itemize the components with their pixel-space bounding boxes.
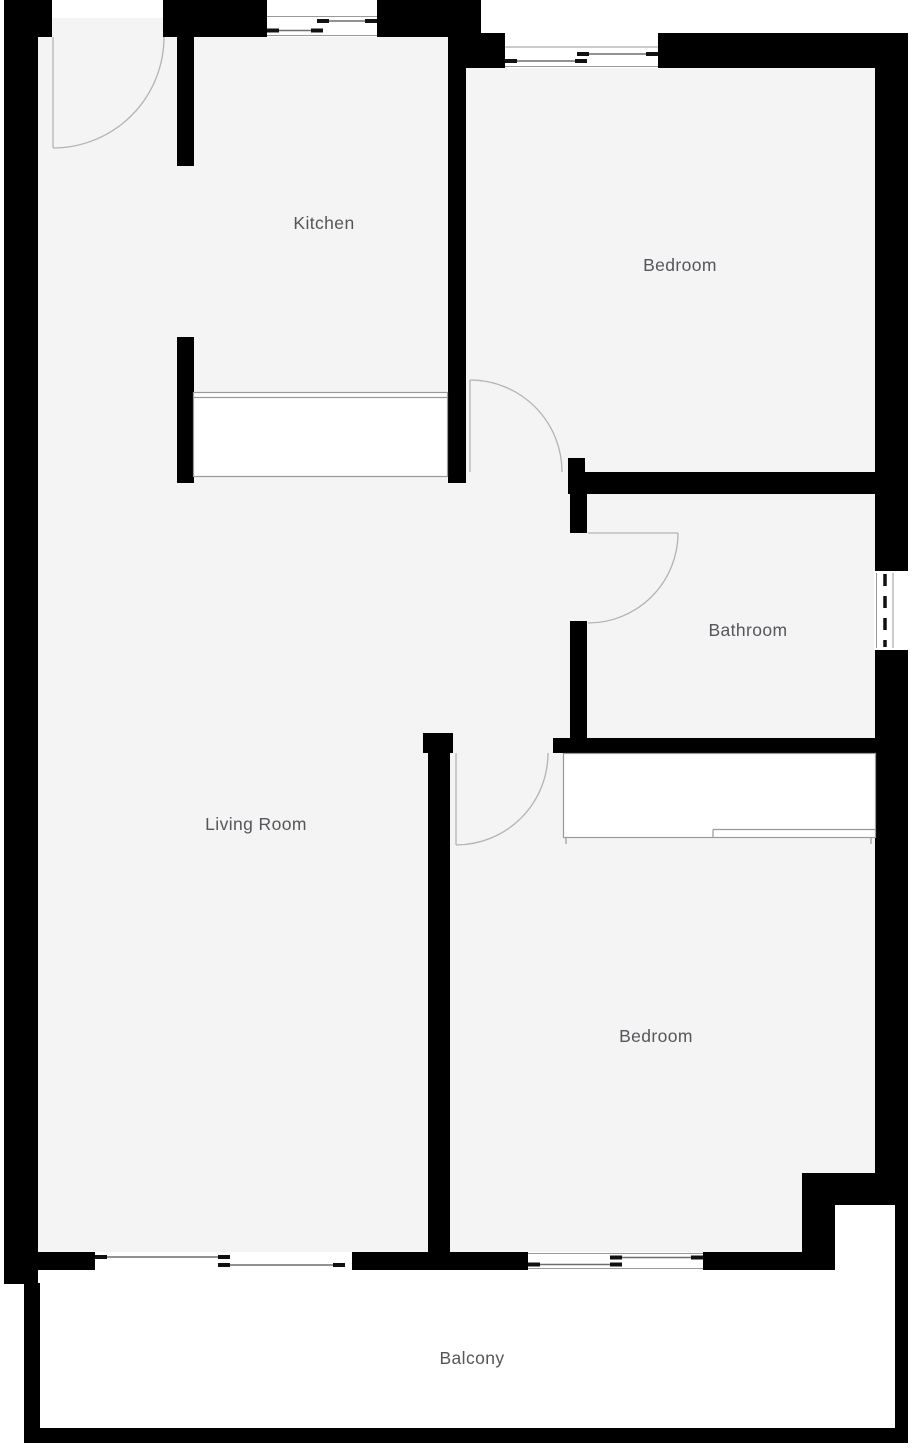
room-label-bedroom-bottom: Bedroom	[619, 1026, 693, 1046]
wall-kitchen-stub-lower	[177, 337, 194, 483]
wall-living-bedroom2	[428, 733, 450, 1252]
wall-top-d	[658, 33, 908, 68]
balcony-wall-bottom	[24, 1428, 908, 1443]
room-label-balcony: Balcony	[439, 1348, 504, 1368]
bedroom-closet-body	[564, 754, 876, 838]
wall-recess-horizontal	[802, 1173, 877, 1205]
floorplan-canvas: Kitchen Bedroom Bathroom Living Room Bed…	[0, 0, 915, 1448]
bedroom-top-window-band	[505, 45, 658, 68]
balcony-wall-left	[24, 1283, 40, 1443]
wall-kitchen-bedroom	[448, 37, 466, 483]
room-label-bedroom-top: Bedroom	[643, 255, 717, 275]
kitchen-counter-body	[194, 393, 448, 477]
floorplan-page: Kitchen Bedroom Bathroom Living Room Bed…	[0, 0, 915, 1448]
wall-bottom-c	[703, 1252, 835, 1270]
balcony-sliding-door	[95, 1252, 352, 1270]
wall-top-b	[163, 0, 267, 37]
bathroom-window-band	[874, 571, 908, 650]
balcony-sliding-door-band	[95, 1252, 352, 1270]
bedroom-top-window	[505, 45, 658, 68]
wall-bathroom-left-lower	[570, 621, 587, 753]
wall-bathroom-left-upper	[570, 494, 587, 533]
bedroom-bottom-window-band	[528, 1252, 703, 1270]
room-label-kitchen: Kitchen	[293, 213, 354, 233]
wall-bottom-b	[352, 1252, 528, 1270]
wall-top-c	[377, 0, 481, 37]
wall-top-a	[4, 0, 52, 37]
kitchen-window-band	[267, 15, 377, 37]
room-label-living-room: Living Room	[205, 814, 307, 834]
wall-bedroom-bathroom	[568, 472, 875, 494]
bedroom-closet	[564, 754, 876, 845]
kitchen-counter	[194, 393, 448, 477]
wall-bottom-a	[38, 1252, 95, 1270]
kitchen-window	[267, 15, 377, 37]
wall-bedroom-door-jamb	[568, 458, 585, 494]
wall-kitchen-stub-upper	[177, 37, 194, 166]
wall-bedroom2-door-jamb	[423, 733, 453, 753]
wall-left-outer	[4, 0, 38, 1284]
bathroom-window	[874, 571, 908, 650]
exterior-recess	[835, 1205, 895, 1262]
wall-bathroom-bottom	[553, 738, 875, 753]
balcony-wall-right	[895, 1205, 908, 1443]
room-label-bathroom: Bathroom	[708, 620, 787, 640]
bedroom-bottom-window	[528, 1252, 703, 1270]
